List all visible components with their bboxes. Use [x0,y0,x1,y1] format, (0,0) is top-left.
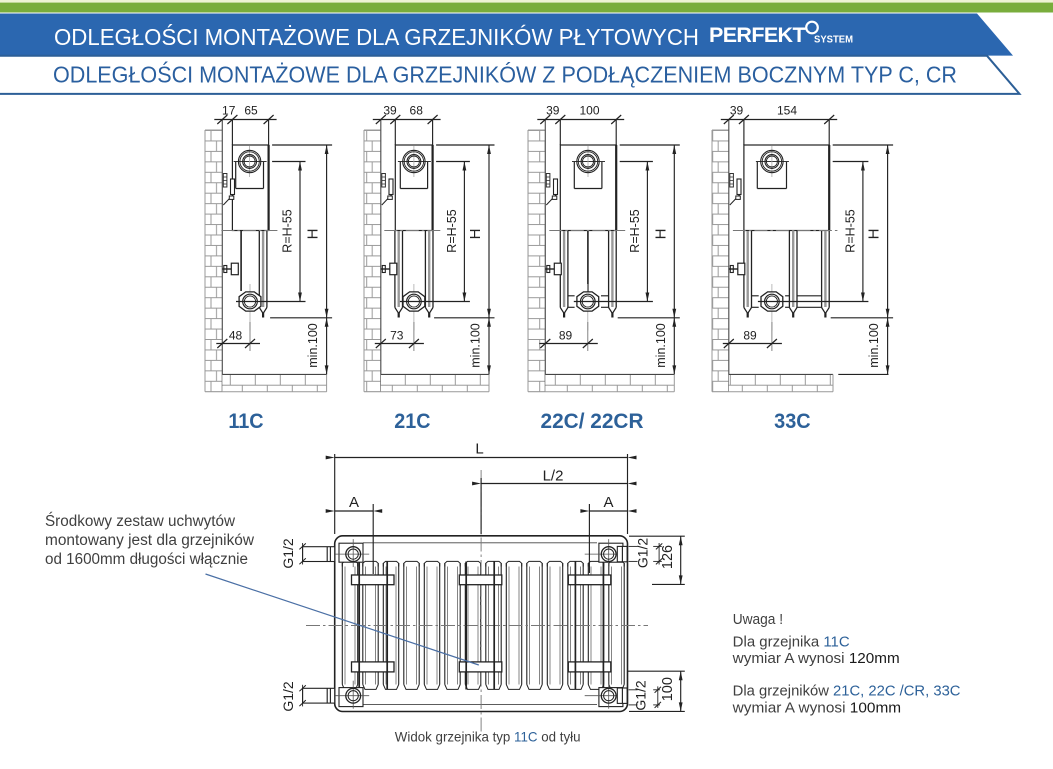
svg-text:od 1600mm długości włącznie: od 1600mm długości włącznie [45,551,248,568]
svg-text:65: 65 [244,104,258,118]
svg-text:R=H-55: R=H-55 [843,209,857,252]
svg-text:SYSTEM: SYSTEM [814,35,853,46]
svg-text:Widok grzejnika typ 11C od tył: Widok grzejnika typ 11C od tyłu [395,729,581,745]
svg-text:L: L [475,441,483,458]
svg-text:11C: 11C [228,409,263,433]
svg-text:48: 48 [229,329,243,343]
svg-text:39: 39 [546,104,560,118]
svg-text:100: 100 [579,104,599,118]
svg-text:Dla grzejnika 11C: Dla grzejnika 11C [733,635,850,651]
svg-text:22C/ 22CR: 22C/ 22CR [541,409,644,433]
svg-text:min.100: min.100 [867,323,881,368]
svg-text:100: 100 [660,677,676,701]
svg-text:Dla grzejników 21C, 22C /CR, 3: Dla grzejników 21C, 22C /CR, 33C [733,684,961,700]
svg-text:A: A [603,494,613,511]
svg-text:G1/2: G1/2 [633,680,649,711]
svg-text:R=H-55: R=H-55 [445,209,459,252]
svg-text:min.100: min.100 [306,323,320,368]
svg-text:126: 126 [660,545,676,569]
svg-text:68: 68 [410,104,424,118]
svg-text:H: H [467,229,484,240]
svg-text:G1/2: G1/2 [280,538,296,569]
svg-text:wymiar A wynosi 100mm: wymiar A wynosi 100mm [732,700,901,716]
svg-text:89: 89 [559,329,573,343]
svg-text:Środkowy zestaw uchwytów: Środkowy zestaw uchwytów [45,512,236,530]
svg-text:89: 89 [743,329,757,343]
svg-text:21C: 21C [394,409,430,433]
svg-text:H: H [305,229,322,240]
svg-text:ODLEGŁOŚCI MONTAŻOWE DLA GRZEJ: ODLEGŁOŚCI MONTAŻOWE DLA GRZEJNIKÓW Z PO… [53,61,957,88]
svg-text:Uwaga !: Uwaga ! [733,612,783,628]
svg-text:H: H [866,229,883,240]
svg-text:154: 154 [777,104,797,118]
svg-text:R=H-55: R=H-55 [628,209,642,252]
svg-text:wymiar A wynosi 120mm: wymiar A wynosi 120mm [732,651,900,667]
svg-text:montowany jest dla grzejników: montowany jest dla grzejników [45,532,255,549]
svg-text:39: 39 [383,104,397,118]
svg-text:min.100: min.100 [654,323,668,368]
svg-text:min.100: min.100 [469,323,483,368]
svg-text:ODLEGŁOŚCI MONTAŻOWE DLA GRZ: ODLEGŁOŚCI MONTAŻOWE DLA GRZEJNIKÓW PŁYT… [54,23,699,50]
svg-text:PERFEKT: PERFEKT [709,23,806,47]
svg-text:G1/2: G1/2 [280,681,296,712]
svg-text:73: 73 [390,329,404,343]
svg-text:A: A [349,494,359,511]
svg-text:17: 17 [222,104,236,118]
svg-text:H: H [652,229,669,240]
svg-text:R=H-55: R=H-55 [281,209,295,252]
svg-text:33C: 33C [774,409,811,433]
svg-text:L/2: L/2 [543,468,564,485]
svg-text:39: 39 [730,104,744,118]
svg-text:G1/2: G1/2 [635,538,651,569]
